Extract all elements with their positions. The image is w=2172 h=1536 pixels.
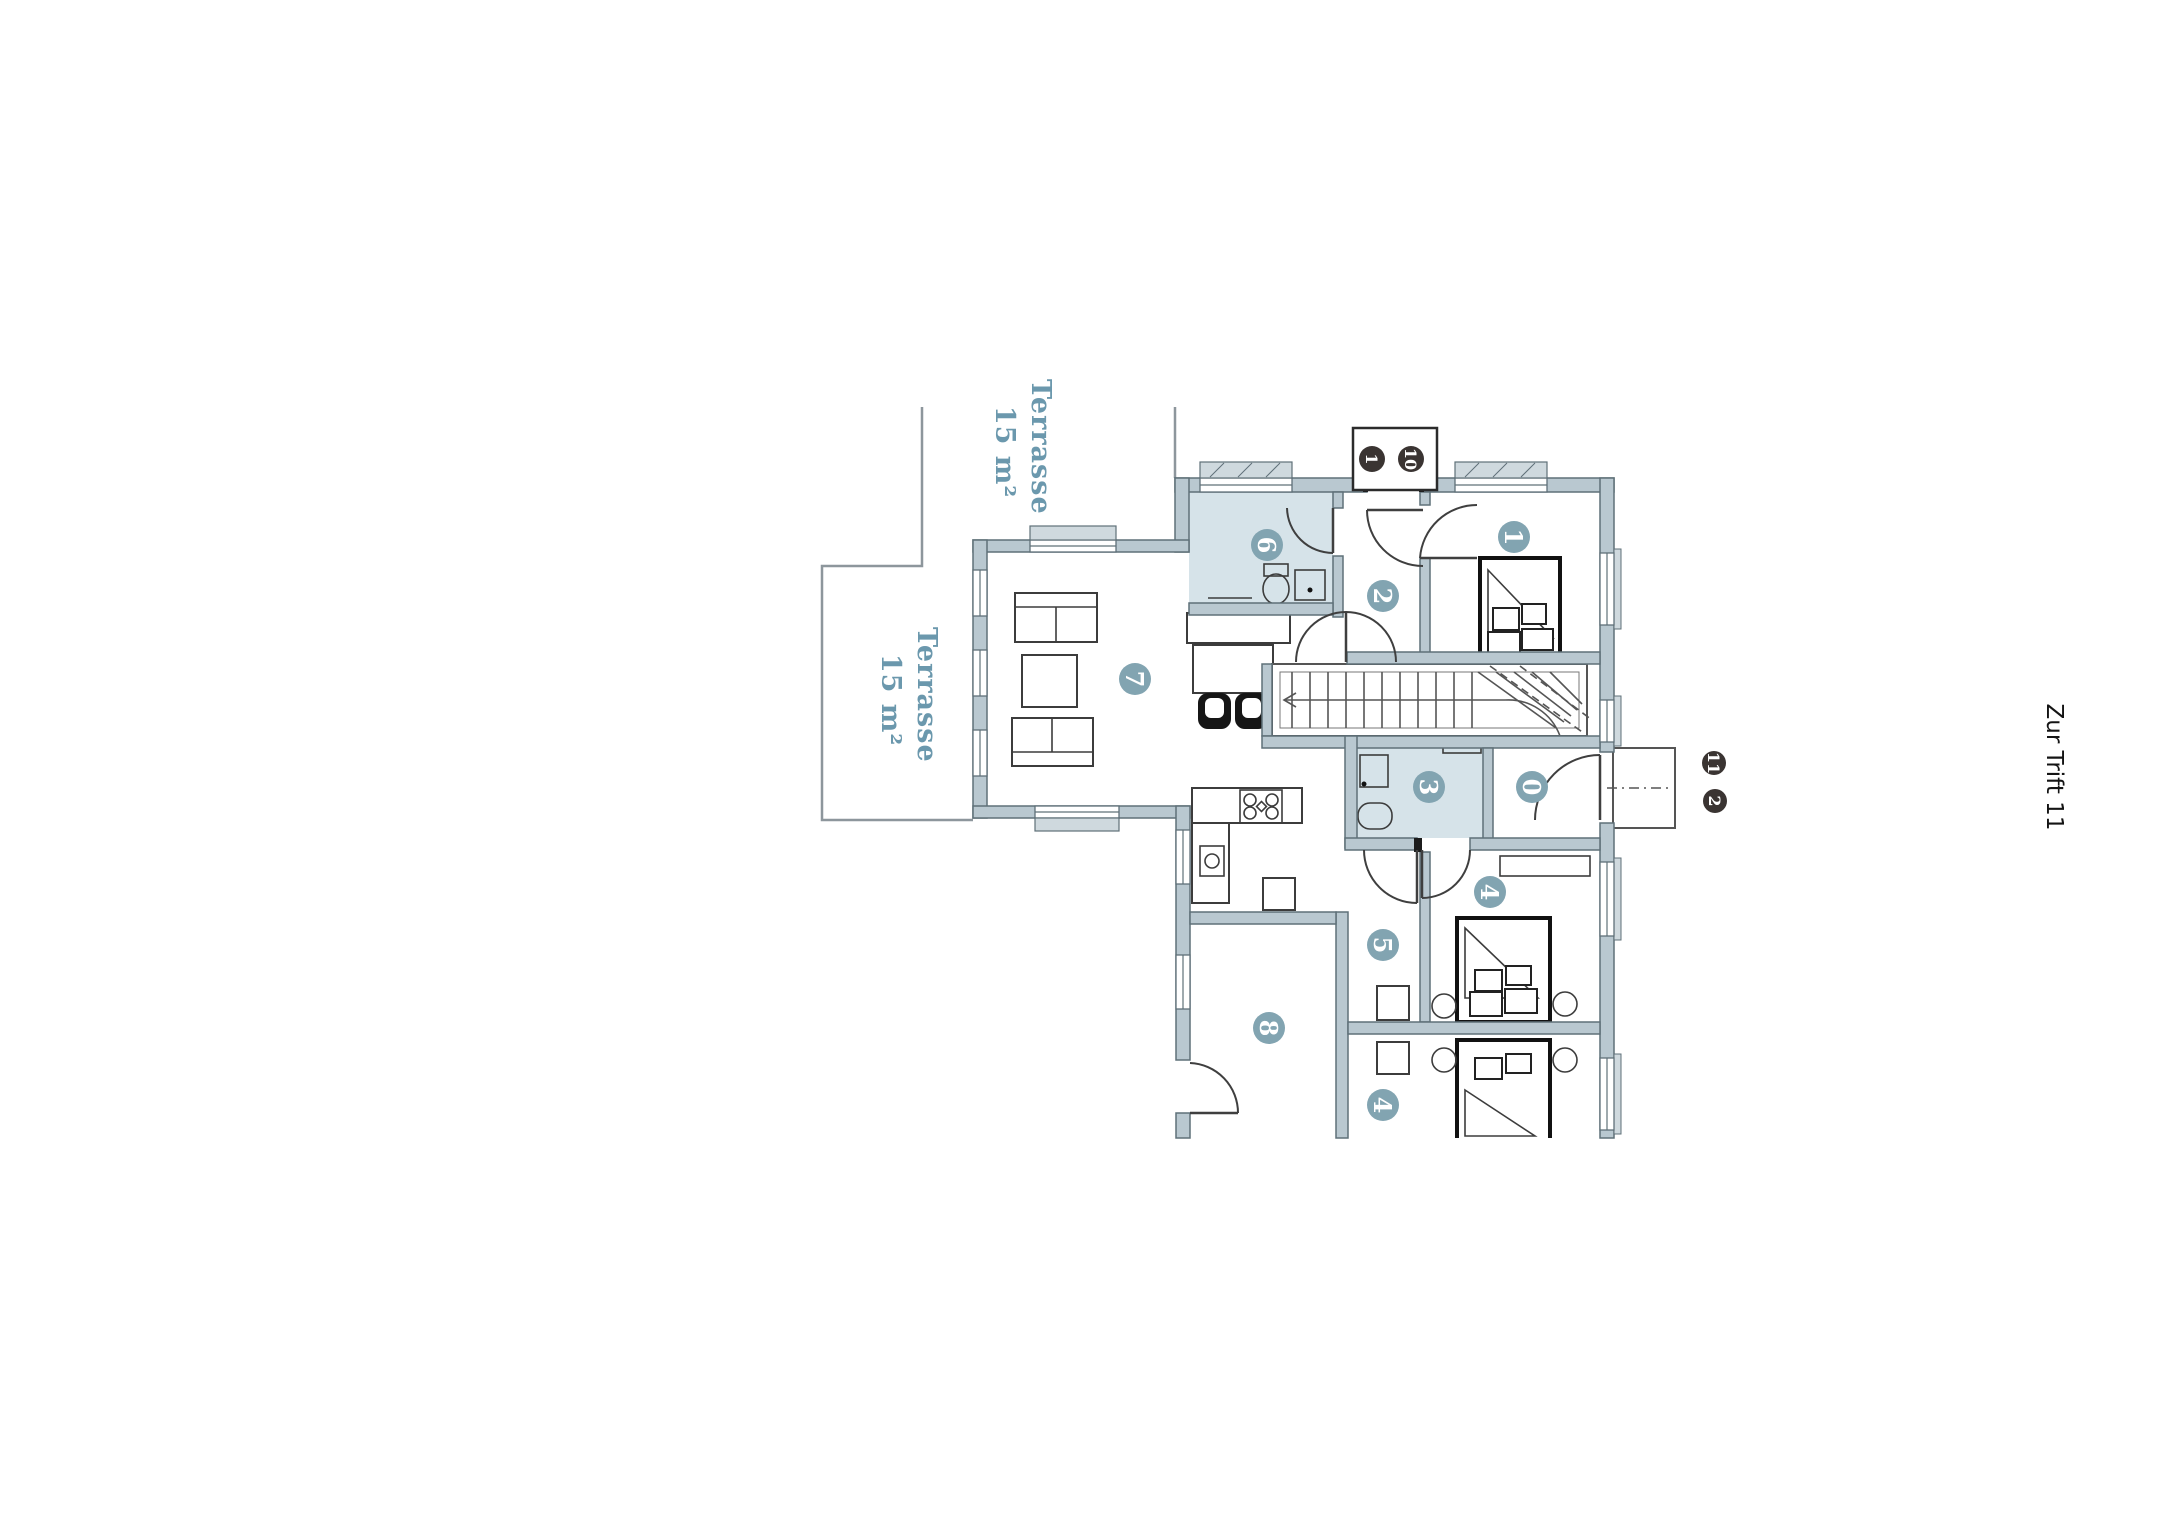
room-label-hallway: 2 — [1367, 580, 1399, 612]
room-label-room-8: 8 — [1253, 1012, 1285, 1044]
svg-text:10: 10 — [1401, 448, 1420, 470]
apartment-entry-door — [1367, 510, 1423, 566]
room-label-bathroom-main: 6 — [1251, 529, 1283, 561]
room-label-bedroom-2: 4 — [1474, 876, 1506, 908]
sofa-bottom — [1012, 718, 1093, 766]
terrace-name: Terrasse — [1025, 379, 1056, 515]
svg-text:2: 2 — [1705, 795, 1724, 806]
terrace-area: 15 m² — [875, 654, 906, 746]
bathroom-small-door — [1364, 850, 1417, 903]
hall-shelf — [1377, 986, 1409, 1020]
room-label-bedroom-1: 1 — [1498, 521, 1530, 553]
svg-text:6: 6 — [1252, 537, 1281, 554]
nightstand-round — [1432, 1048, 1456, 1072]
sideboard — [1187, 613, 1290, 643]
room-label-bedroom-3: 4 — [1367, 1089, 1399, 1121]
svg-text:4: 4 — [1368, 1097, 1397, 1114]
terrace-area: 15 m² — [989, 406, 1020, 498]
stairwell-badge-box: 1 10 — [1353, 428, 1437, 490]
room-label-bathroom-small: 3 — [1413, 771, 1445, 803]
floor-plan-page: 1 2 3 4 5 6 7 8 — [0, 0, 2172, 1536]
hall-shelf — [1377, 1042, 1409, 1074]
entrance-badges: 11 2 — [1702, 751, 1727, 813]
street-label: Zur Trift 11 — [2041, 704, 2067, 831]
staircase — [1272, 664, 1592, 736]
svg-text:5: 5 — [1368, 937, 1397, 954]
svg-text:3: 3 — [1414, 779, 1443, 796]
terrace-name: Terrasse — [911, 627, 942, 763]
bed-bedroom-3 — [1432, 1040, 1577, 1138]
room-8-door — [1190, 1063, 1238, 1113]
nightstand-round — [1432, 994, 1456, 1018]
bed-bedroom-1 — [1480, 558, 1560, 658]
dining-table — [1193, 645, 1273, 693]
room-label-living-room: 7 — [1119, 663, 1151, 695]
bedroom-1-door — [1420, 505, 1477, 558]
svg-text:8: 8 — [1254, 1020, 1283, 1037]
kitchen-counter — [1192, 788, 1302, 910]
terrace-label-lower: Terrasse 15 m² — [875, 627, 942, 773]
entry-porch — [1607, 748, 1675, 828]
svg-text:Terrasse 15 m²: Terrasse 15 m² — [875, 627, 942, 773]
svg-text:11: 11 — [1704, 752, 1723, 774]
bed-bedroom-2 — [1432, 856, 1590, 1022]
svg-text:7: 7 — [1120, 671, 1149, 688]
svg-text:2: 2 — [1368, 588, 1397, 605]
room-label-hall: 5 — [1367, 929, 1399, 961]
svg-text:1: 1 — [1362, 453, 1381, 464]
floor-plan-drawing: 1 2 3 4 5 6 7 8 — [0, 0, 2172, 1536]
nightstand-round — [1553, 992, 1577, 1016]
dining-chairs — [1199, 694, 1267, 728]
sofa-top — [1015, 593, 1097, 642]
terrace-label-upper: Terrasse 15 m² — [989, 379, 1056, 525]
nightstand-round — [1553, 1048, 1577, 1072]
svg-text:Terrasse 15 m²: Terrasse 15 m² — [989, 379, 1056, 525]
coffee-table — [1022, 655, 1077, 707]
svg-text:0: 0 — [1517, 779, 1546, 796]
kitchen-island — [1263, 878, 1295, 910]
svg-text:4: 4 — [1475, 884, 1504, 901]
svg-text:1: 1 — [1499, 529, 1528, 546]
room-label-entry: 0 — [1516, 771, 1548, 803]
wardrobe — [1500, 856, 1590, 876]
